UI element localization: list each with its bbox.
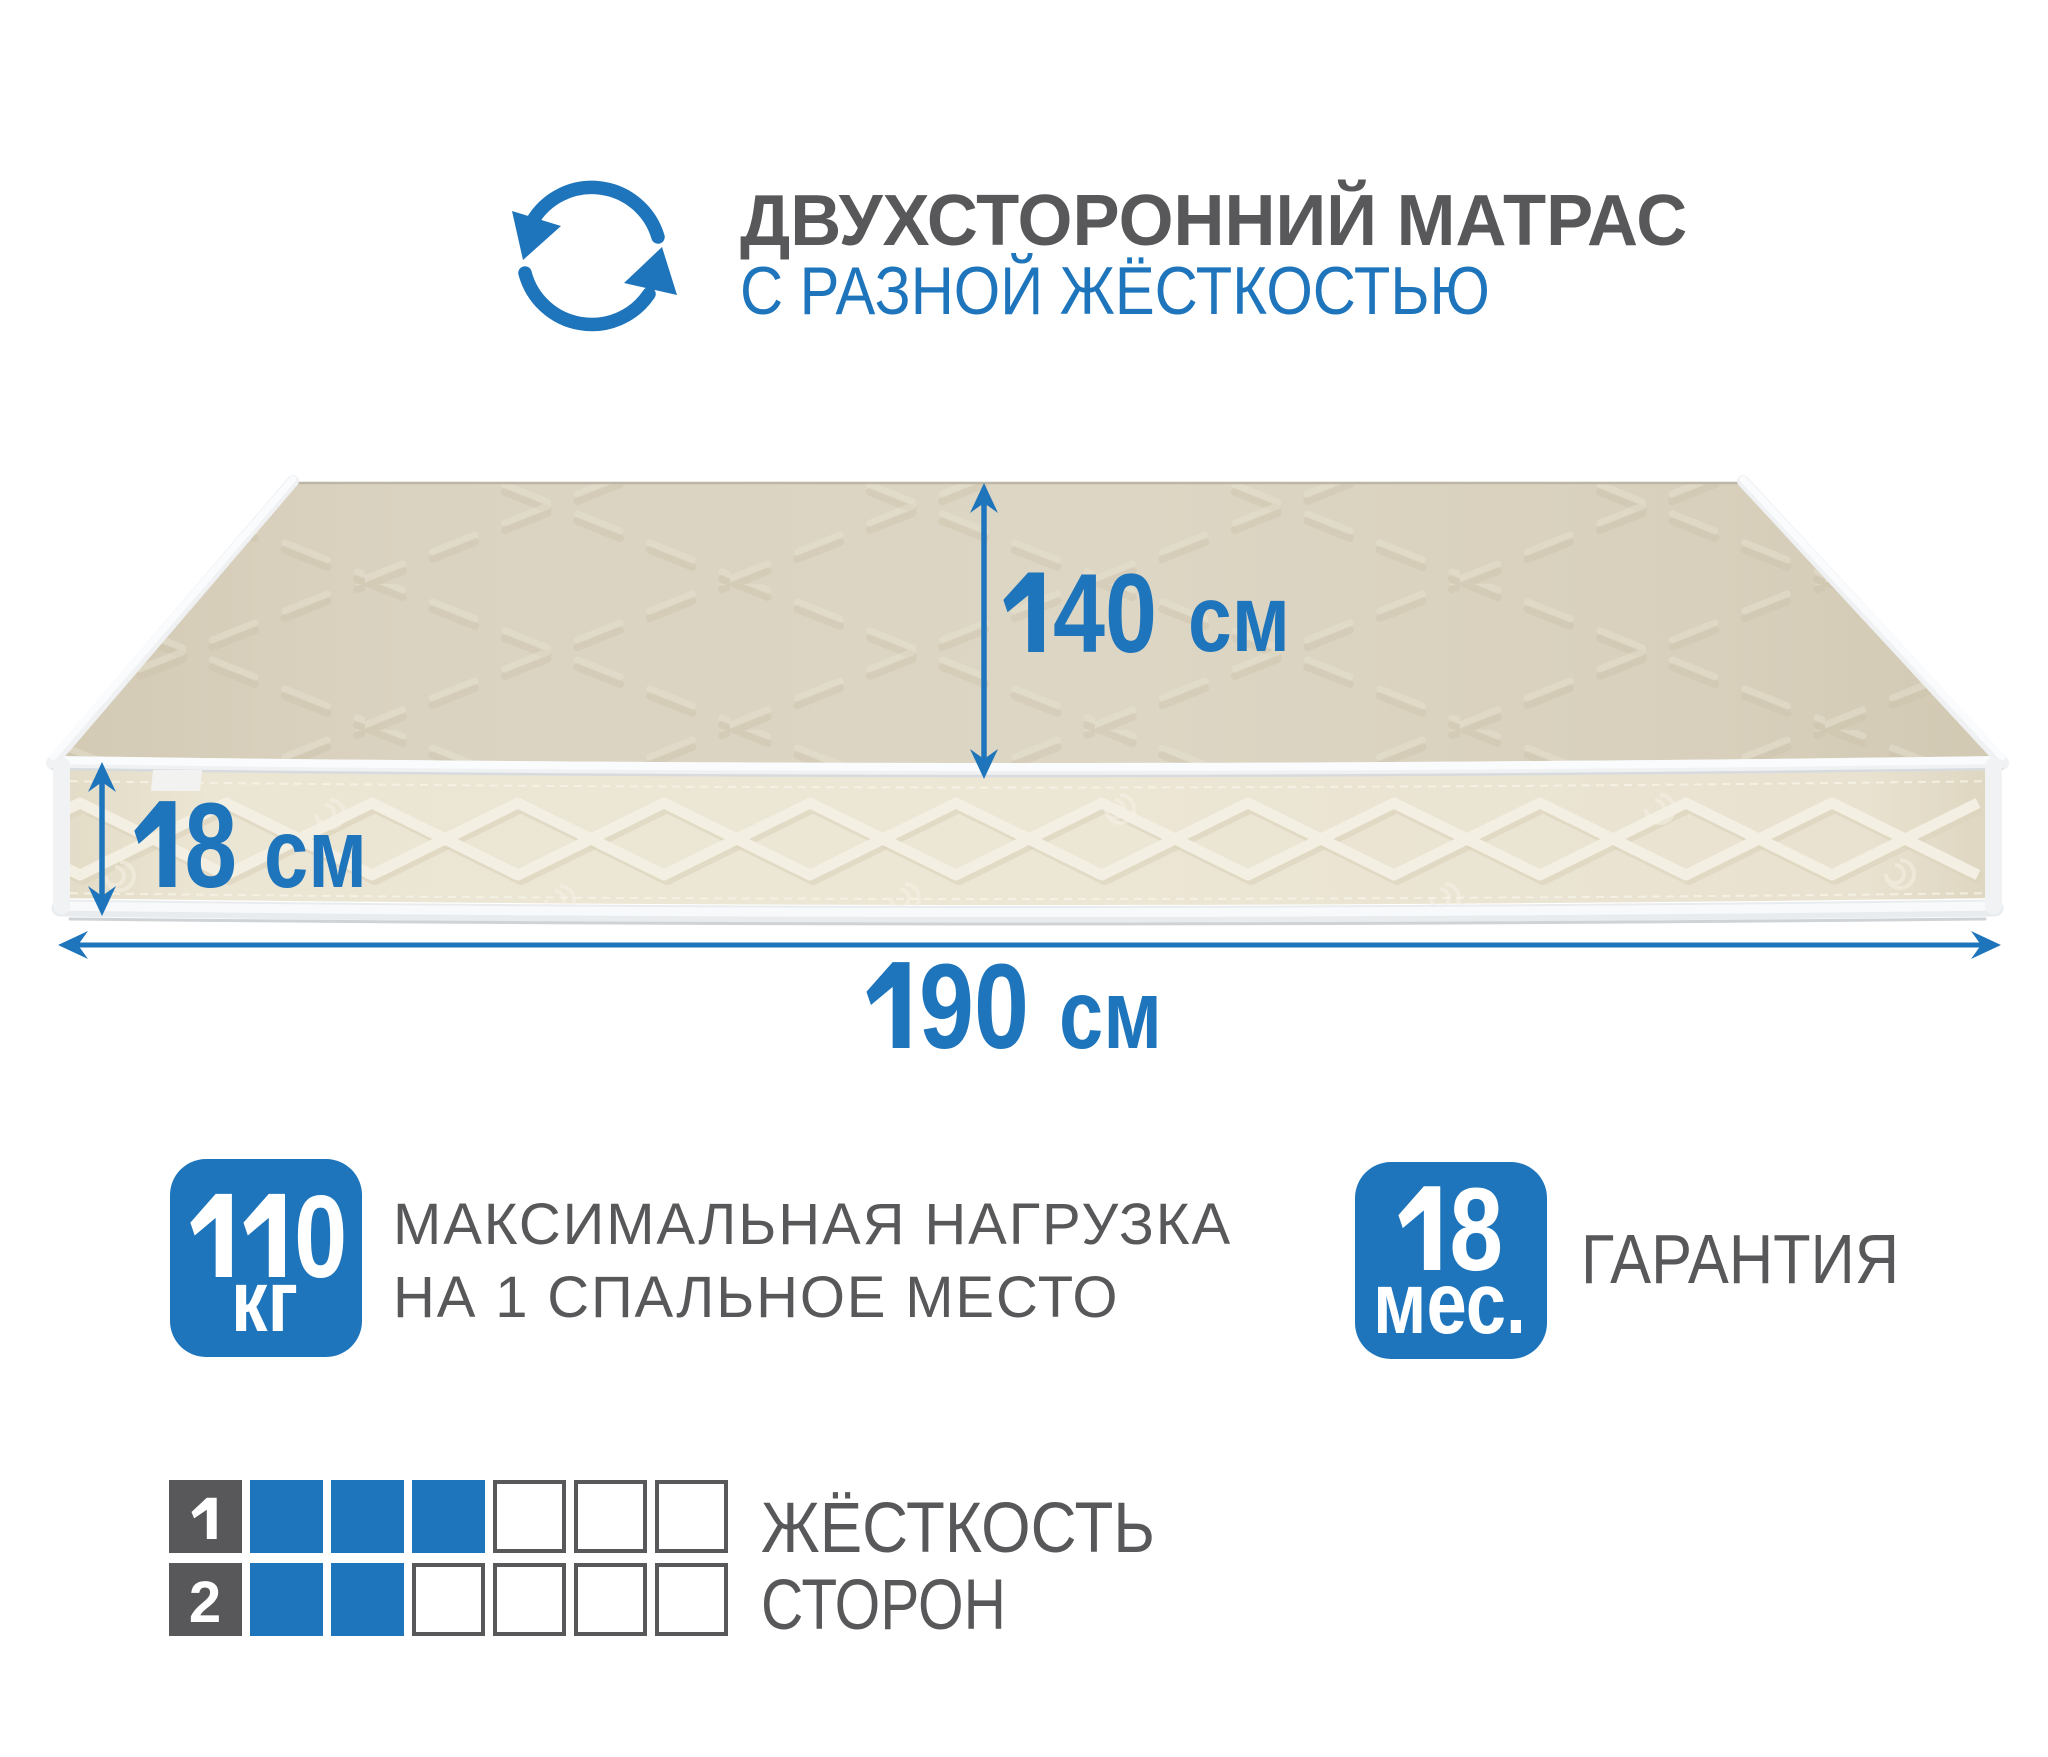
svg-text:СТОРОН: СТОРОН xyxy=(761,1565,1006,1645)
svg-text:40: 40 xyxy=(1053,551,1157,676)
svg-text:кг: кг xyxy=(231,1253,298,1350)
svg-text:мес.: мес. xyxy=(1373,1255,1526,1352)
svg-text:НА 1 СПАЛЬНОЕ МЕСТО: НА 1 СПАЛЬНОЕ МЕСТО xyxy=(393,1265,1119,1330)
svg-text:см: см xyxy=(1059,959,1162,1069)
svg-text:см: см xyxy=(1188,566,1290,672)
svg-text:90: 90 xyxy=(919,940,1029,1075)
svg-text:ЖЁСТКОСТЬ: ЖЁСТКОСТЬ xyxy=(761,1489,1155,1568)
svg-text:ДВУХСТОРОННИЙ МАТРАС: ДВУХСТОРОННИЙ МАТРАС xyxy=(740,180,1687,261)
svg-text:МАКСИМАЛЬНАЯ НАГРУЗКА: МАКСИМАЛЬНАЯ НАГРУЗКА xyxy=(393,1192,1232,1257)
svg-text:0: 0 xyxy=(294,1171,347,1302)
svg-text:С РАЗНОЙ ЖЁСТКОСТЬЮ: С РАЗНОЙ ЖЁСТКОСТЬЮ xyxy=(740,251,1490,329)
svg-text:см: см xyxy=(264,798,367,908)
svg-text:2: 2 xyxy=(189,1570,221,1635)
svg-text:ГАРАНТИЯ: ГАРАНТИЯ xyxy=(1581,1219,1899,1298)
svg-text:8: 8 xyxy=(184,778,236,913)
